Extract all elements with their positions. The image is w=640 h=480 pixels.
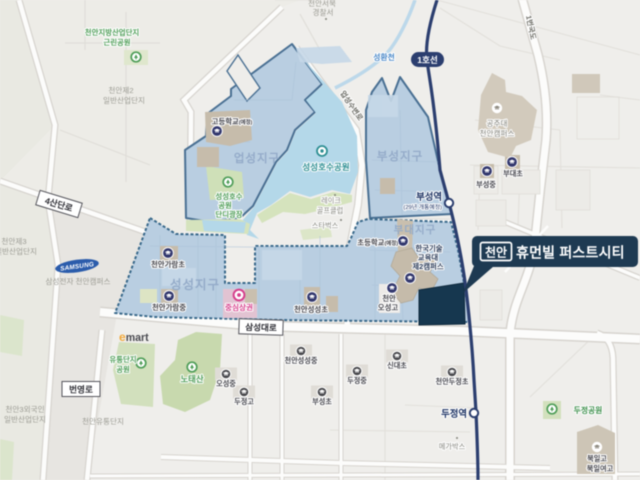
svg-text:부대지구: 부대지구 (394, 223, 437, 236)
svg-text:유통단지: 유통단지 (109, 355, 136, 364)
svg-text:북일고: 북일고 (587, 454, 607, 463)
svg-text:공원: 공원 (218, 201, 232, 210)
svg-text:부대초: 부대초 (503, 169, 523, 178)
svg-text:부성지구: 부성지구 (377, 149, 423, 163)
svg-text:오성고: 오성고 (378, 303, 399, 312)
svg-text:삼성대로: 삼성대로 (245, 321, 277, 333)
svg-text:천안성성중: 천안성성중 (284, 356, 317, 365)
svg-text:단디광장: 단디광장 (215, 210, 242, 219)
svg-text:천안유통단지: 천안유통단지 (82, 416, 124, 426)
svg-text:천안성성초: 천안성성초 (294, 305, 328, 314)
svg-text:근린공원: 근린공원 (103, 38, 130, 47)
svg-text:공원: 공원 (116, 365, 130, 374)
svg-text:두정역: 두정역 (441, 408, 467, 419)
svg-text:공주대: 공주대 (487, 119, 508, 128)
svg-text:두정중: 두정중 (347, 376, 367, 385)
svg-text:천안서북: 천안서북 (308, 0, 336, 8)
svg-text:천안제3: 천안제3 (1, 236, 26, 246)
svg-text:천안: 천안 (485, 245, 507, 260)
svg-text:부성중: 부성중 (476, 180, 496, 189)
svg-text:메가박스: 메가박스 (439, 442, 466, 451)
svg-text:천안가람중: 천안가람중 (152, 303, 186, 312)
svg-text:emart: emart (119, 330, 149, 344)
svg-text:일반산업단지: 일반산업단지 (0, 246, 37, 256)
svg-text:한국기술: 한국기술 (415, 244, 442, 253)
svg-text:일반산업단지: 일반산업단지 (103, 95, 145, 105)
svg-text:중심상권: 중심상권 (225, 302, 253, 312)
svg-text:천안3외국인: 천안3외국인 (5, 404, 44, 414)
svg-text:경찰서: 경찰서 (313, 7, 334, 17)
svg-text:천안캠퍼스: 천안캠퍼스 (480, 128, 515, 138)
svg-text:일반산업단지: 일반산업단지 (4, 414, 46, 424)
svg-text:신대초: 신대초 (387, 361, 407, 370)
svg-text:북일여고: 북일여고 (587, 464, 614, 473)
svg-text:번영로: 번영로 (69, 384, 93, 395)
svg-text:성성호수공원: 성성호수공원 (302, 161, 350, 172)
svg-text:성성지구: 성성지구 (170, 277, 220, 292)
svg-text:1호선: 1호선 (417, 54, 438, 65)
svg-text:휴먼빌 퍼스트시티: 휴먼빌 퍼스트시티 (516, 245, 625, 261)
svg-text:두정공원: 두정공원 (574, 405, 603, 415)
svg-text:부성역: 부성역 (416, 191, 442, 202)
svg-text:교육대: 교육대 (418, 253, 439, 262)
svg-text:노태산: 노태산 (180, 374, 203, 384)
svg-text:부성초: 부성초 (312, 397, 332, 406)
svg-text:오성중: 오성중 (216, 379, 236, 388)
svg-text:제2캠퍼스: 제2캠퍼스 (412, 262, 444, 271)
svg-text:천안가람초: 천안가람초 (151, 260, 185, 269)
svg-text:천안두정초: 천안두정초 (435, 377, 468, 386)
svg-text:골프클럽: 골프클럽 (317, 206, 343, 215)
svg-text:스타벅스: 스타벅스 (312, 221, 339, 230)
svg-text:천안: 천안 (382, 294, 396, 303)
svg-text:성성호수: 성성호수 (215, 192, 242, 201)
svg-text:(29년 개통예정): (29년 개통예정) (403, 203, 442, 211)
svg-text:천안지방산업단지: 천안지방산업단지 (85, 28, 139, 37)
svg-text:성환천: 성환천 (373, 52, 395, 62)
svg-text:천안제2: 천안제2 (108, 85, 133, 95)
svg-text:두정고: 두정고 (234, 397, 254, 406)
svg-text:업성지구: 업성지구 (234, 151, 280, 165)
svg-text:삼성전자 천안캠퍼스: 삼성전자 천안캠퍼스 (46, 276, 111, 286)
svg-text:레이크: 레이크 (321, 196, 341, 205)
